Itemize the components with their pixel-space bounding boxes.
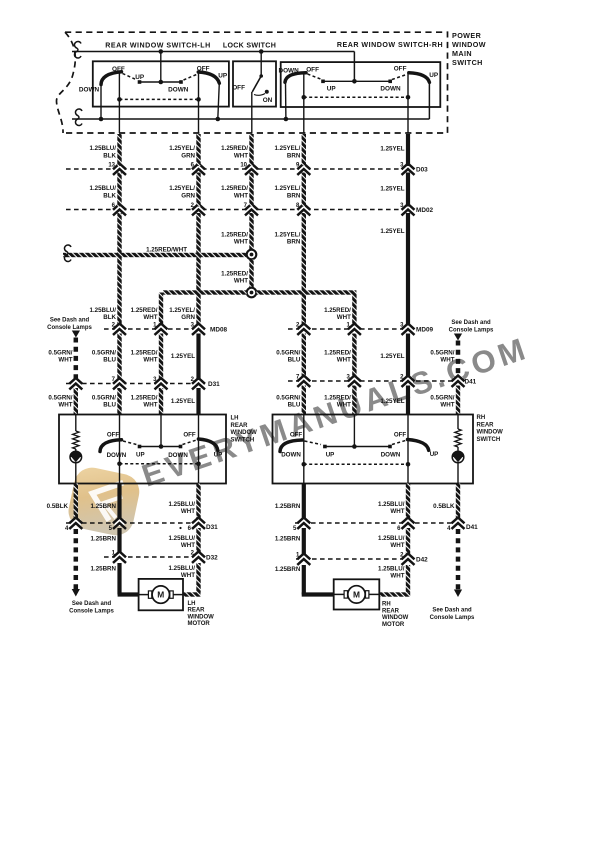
svg-text:D03: D03 <box>416 167 428 174</box>
svg-text:REAR: REAR <box>382 608 400 614</box>
svg-text:WHT: WHT <box>337 402 351 409</box>
svg-text:MD02: MD02 <box>416 207 433 214</box>
svg-text:OFF: OFF <box>306 67 319 74</box>
svg-text:DOWN: DOWN <box>168 87 189 94</box>
svg-text:WHT: WHT <box>234 193 248 200</box>
svg-text:BLU: BLU <box>103 402 116 409</box>
svg-text:WHT: WHT <box>390 573 404 580</box>
svg-text:WHT: WHT <box>181 542 195 549</box>
svg-text:1.25YEL: 1.25YEL <box>171 398 195 405</box>
svg-text:1.25BLU/: 1.25BLU/ <box>169 565 196 572</box>
svg-text:1.25RED/: 1.25RED/ <box>324 395 351 402</box>
svg-text:WINDOW: WINDOW <box>188 614 215 620</box>
svg-text:UP: UP <box>326 452 335 459</box>
svg-text:1.25YEL/: 1.25YEL/ <box>275 232 301 239</box>
svg-text:BLK: BLK <box>103 314 116 321</box>
svg-text:D42: D42 <box>416 557 428 564</box>
svg-text:WINDOW: WINDOW <box>452 40 486 49</box>
svg-text:1.25RED/: 1.25RED/ <box>221 232 248 239</box>
svg-text:WHT: WHT <box>234 278 248 285</box>
svg-text:D31: D31 <box>208 381 220 388</box>
svg-text:SWITCH: SWITCH <box>452 58 483 67</box>
svg-text:1.25RED/: 1.25RED/ <box>131 307 158 314</box>
svg-text:UP: UP <box>136 452 145 459</box>
svg-text:WHT: WHT <box>234 239 248 246</box>
svg-text:1.25YEL/: 1.25YEL/ <box>169 145 195 152</box>
svg-text:0.5GRN/: 0.5GRN/ <box>48 395 72 402</box>
svg-text:1.25BRN: 1.25BRN <box>91 566 117 573</box>
svg-text:BLK: BLK <box>103 193 116 200</box>
svg-text:UP: UP <box>135 74 145 81</box>
svg-text:ON: ON <box>263 97 273 104</box>
svg-text:WHT: WHT <box>390 542 404 549</box>
svg-text:1.25YEL: 1.25YEL <box>380 353 404 360</box>
svg-text:1.25YEL: 1.25YEL <box>380 228 404 235</box>
svg-text:0.5BLK: 0.5BLK <box>47 503 69 510</box>
svg-text:1.25BRN: 1.25BRN <box>91 503 117 510</box>
svg-text:0.5BLK: 0.5BLK <box>433 503 455 510</box>
svg-text:1.25BLU/: 1.25BLU/ <box>90 145 117 152</box>
svg-text:REAR: REAR <box>477 422 495 428</box>
svg-text:D41: D41 <box>466 524 478 531</box>
svg-text:GRN: GRN <box>181 193 195 200</box>
svg-text:0.5GRN/: 0.5GRN/ <box>430 350 454 357</box>
svg-text:BRN: BRN <box>287 239 301 246</box>
svg-text:SWITCH: SWITCH <box>231 437 255 443</box>
svg-text:DOWN: DOWN <box>107 452 127 459</box>
svg-text:1.25BLU/: 1.25BLU/ <box>378 501 405 508</box>
svg-text:See Dash and: See Dash and <box>50 318 90 324</box>
svg-text:MD09: MD09 <box>416 327 433 334</box>
svg-text:POWER: POWER <box>452 31 482 40</box>
svg-text:1.25BLU/: 1.25BLU/ <box>169 535 196 542</box>
svg-text:WHT: WHT <box>440 402 454 409</box>
svg-text:0.5GRN/: 0.5GRN/ <box>92 350 116 357</box>
svg-text:WHT: WHT <box>143 402 157 409</box>
svg-text:REAR: REAR <box>231 423 249 429</box>
svg-text:1.25BLU/: 1.25BLU/ <box>378 566 405 573</box>
svg-text:BRN: BRN <box>287 153 301 160</box>
svg-text:WHT: WHT <box>181 572 195 579</box>
svg-text:WHT: WHT <box>390 508 404 515</box>
svg-text:1.25BRN: 1.25BRN <box>275 566 301 573</box>
svg-text:LH: LH <box>188 601 196 607</box>
svg-text:WHT: WHT <box>143 357 157 364</box>
svg-text:1.25RED/: 1.25RED/ <box>324 350 351 357</box>
svg-text:See Dash and: See Dash and <box>72 601 112 607</box>
svg-text:REAR WINDOW SWITCH-RH: REAR WINDOW SWITCH-RH <box>337 41 443 49</box>
svg-text:LOCK SWITCH: LOCK SWITCH <box>223 42 276 50</box>
svg-text:WHT: WHT <box>337 357 351 364</box>
svg-text:1.25YEL/: 1.25YEL/ <box>169 185 195 192</box>
svg-text:DOWN: DOWN <box>380 86 401 93</box>
svg-text:10: 10 <box>240 163 247 169</box>
svg-text:1.25BRN: 1.25BRN <box>275 503 301 510</box>
svg-text:13: 13 <box>108 163 115 169</box>
svg-text:1.25YEL/: 1.25YEL/ <box>275 185 301 192</box>
svg-text:DOWN: DOWN <box>168 452 188 459</box>
svg-text:OFF: OFF <box>183 432 196 439</box>
svg-text:MD08: MD08 <box>210 327 227 334</box>
svg-text:OFF: OFF <box>197 66 210 73</box>
svg-text:OFF: OFF <box>112 66 125 73</box>
svg-text:GRN: GRN <box>181 314 195 321</box>
svg-text:MOTOR: MOTOR <box>188 621 211 627</box>
svg-text:WHT: WHT <box>440 357 454 364</box>
svg-text:LH: LH <box>231 416 239 422</box>
svg-text:BLU: BLU <box>103 357 116 364</box>
svg-text:MAIN: MAIN <box>452 49 472 58</box>
svg-text:WINDOW: WINDOW <box>382 615 409 621</box>
svg-text:0.5GRN/: 0.5GRN/ <box>430 395 454 402</box>
svg-text:UP: UP <box>214 452 223 459</box>
svg-text:UP: UP <box>218 73 228 80</box>
svg-text:OFF: OFF <box>290 432 303 439</box>
svg-text:0.5GRN/: 0.5GRN/ <box>92 395 116 402</box>
svg-text:GRN: GRN <box>181 153 195 160</box>
svg-text:1.25RED/WHT: 1.25RED/WHT <box>146 247 187 254</box>
svg-text:Console Lamps: Console Lamps <box>449 328 494 334</box>
svg-text:1.25YEL: 1.25YEL <box>380 186 404 193</box>
svg-text:OFF: OFF <box>394 432 407 439</box>
svg-text:DOWN: DOWN <box>278 68 299 75</box>
svg-text:BRN: BRN <box>287 193 301 200</box>
svg-text:Console Lamps: Console Lamps <box>47 325 92 331</box>
svg-text:1.25YEL: 1.25YEL <box>171 353 195 360</box>
svg-text:REAR: REAR <box>188 608 206 614</box>
svg-text:BLK: BLK <box>103 153 116 160</box>
svg-text:MOTOR: MOTOR <box>382 622 405 628</box>
svg-text:M: M <box>157 590 164 600</box>
svg-text:0.5GRN/: 0.5GRN/ <box>276 395 300 402</box>
svg-text:WINDOW: WINDOW <box>477 430 504 436</box>
svg-text:See Dash and: See Dash and <box>432 608 472 614</box>
svg-text:Console Lamps: Console Lamps <box>430 615 475 621</box>
svg-text:1.25BLU/: 1.25BLU/ <box>378 535 405 542</box>
svg-text:WHT: WHT <box>143 314 157 321</box>
svg-text:1.25RED/: 1.25RED/ <box>221 271 248 278</box>
svg-text:1.25BLU/: 1.25BLU/ <box>90 185 117 192</box>
svg-text:OFF: OFF <box>232 85 245 92</box>
svg-text:WHT: WHT <box>234 153 248 160</box>
svg-text:1.25RED/: 1.25RED/ <box>221 185 248 192</box>
svg-text:Console Lamps: Console Lamps <box>69 609 114 615</box>
svg-text:D31: D31 <box>206 524 218 531</box>
svg-text:1.25BRN: 1.25BRN <box>275 536 301 543</box>
svg-text:DOWN: DOWN <box>281 452 301 459</box>
svg-text:WINDOW: WINDOW <box>231 430 258 436</box>
svg-text:1.25RED/: 1.25RED/ <box>131 350 158 357</box>
svg-text:0.5GRN/: 0.5GRN/ <box>48 350 72 357</box>
svg-text:BLU: BLU <box>288 402 301 409</box>
svg-text:RH: RH <box>477 415 486 421</box>
svg-text:1.25BLU/: 1.25BLU/ <box>169 501 196 508</box>
svg-text:1.25RED/: 1.25RED/ <box>221 145 248 152</box>
svg-text:UP: UP <box>327 86 337 93</box>
svg-text:DOWN: DOWN <box>79 87 100 94</box>
svg-text:1.25RED/: 1.25RED/ <box>131 395 158 402</box>
svg-text:1.25BLU/: 1.25BLU/ <box>90 307 117 314</box>
svg-text:1.25YEL: 1.25YEL <box>380 146 404 153</box>
svg-text:1.25YEL: 1.25YEL <box>380 398 404 405</box>
svg-text:M: M <box>353 589 360 599</box>
svg-text:1.25YEL/: 1.25YEL/ <box>169 307 195 314</box>
svg-text:OFF: OFF <box>394 66 407 73</box>
svg-text:1.25RED/: 1.25RED/ <box>324 307 351 314</box>
svg-text:REAR WINDOW SWITCH-LH: REAR WINDOW SWITCH-LH <box>105 42 210 50</box>
svg-text:UP: UP <box>429 72 439 79</box>
svg-text:BLU: BLU <box>288 357 301 364</box>
svg-text:WHT: WHT <box>181 508 195 515</box>
svg-text:OFF: OFF <box>107 432 120 439</box>
svg-text:0.5GRN/: 0.5GRN/ <box>276 350 300 357</box>
svg-text:WHT: WHT <box>58 357 72 364</box>
svg-text:UP: UP <box>430 451 439 458</box>
svg-text:WHT: WHT <box>58 402 72 409</box>
svg-text:RH: RH <box>382 602 391 608</box>
svg-text:SWITCH: SWITCH <box>477 437 501 443</box>
svg-text:WHT: WHT <box>337 314 351 321</box>
svg-text:1.25YEL/: 1.25YEL/ <box>275 145 301 152</box>
svg-text:D32: D32 <box>206 555 218 562</box>
svg-text:See Dash and: See Dash and <box>451 320 491 326</box>
svg-text:DOWN: DOWN <box>381 452 401 459</box>
svg-text:1.25BRN: 1.25BRN <box>91 536 117 543</box>
svg-text:D41: D41 <box>465 379 477 386</box>
